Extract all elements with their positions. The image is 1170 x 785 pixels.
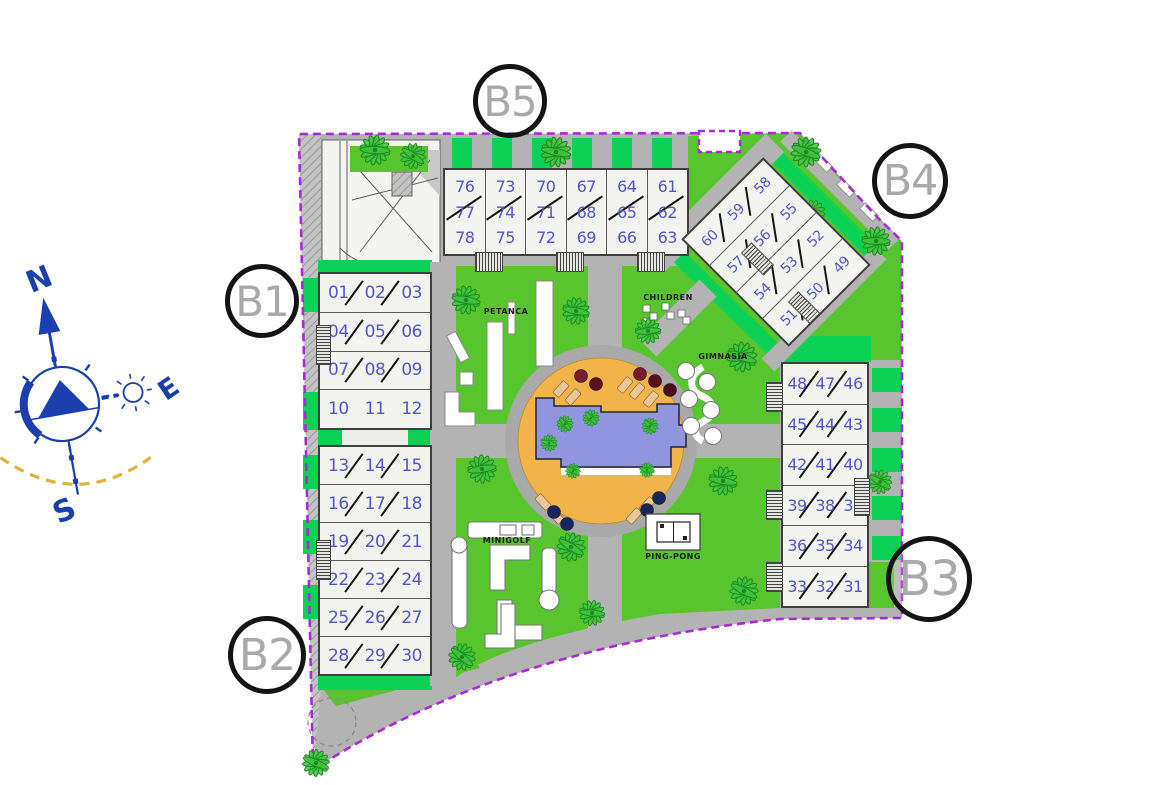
unit-number: 67 <box>577 177 596 196</box>
block-label-b2: B2 <box>228 616 306 694</box>
compass-rose: N E S <box>0 239 205 540</box>
unit-number: 14 <box>365 456 386 476</box>
compass-north-label: N <box>21 259 57 301</box>
block-label-b1: B1 <box>225 264 299 338</box>
unit-number: 55 <box>778 201 801 224</box>
terrain-layer: N E S <box>0 0 1170 785</box>
unit-number: 71 <box>536 203 555 222</box>
unit-number: 77 <box>455 203 474 222</box>
unit-row: 040506 <box>320 313 430 352</box>
stairs-icon <box>766 562 783 592</box>
unit-column: 707172 <box>526 170 567 254</box>
unit-number: 39 <box>787 496 806 515</box>
unit-column: 676869 <box>567 170 608 254</box>
minigolf-label: MINIGOLF <box>462 536 552 545</box>
children-label: CHILDREN <box>625 293 711 302</box>
unit-row: 363534 <box>783 526 867 567</box>
unit-number: 47 <box>815 374 834 393</box>
unit-number: 74 <box>496 203 515 222</box>
unit-number: 73 <box>496 177 515 196</box>
compass-south-label: S <box>48 491 82 532</box>
site-plan: N E S 7677787374757071726768696465666162… <box>0 0 1170 785</box>
unit-number: 59 <box>725 201 748 224</box>
unit-number: 23 <box>365 570 386 590</box>
unit-number: 49 <box>830 254 853 277</box>
unit-number: 61 <box>658 177 677 196</box>
block-label-text: B1 <box>235 277 289 326</box>
unit-column: 737475 <box>486 170 527 254</box>
unit-row: 010203 <box>320 274 430 313</box>
stairs-icon <box>475 252 503 272</box>
unit-number: 75 <box>496 228 515 247</box>
unit-number: 03 <box>401 283 422 303</box>
unit-number: 07 <box>328 360 349 380</box>
unit-number: 46 <box>843 374 862 393</box>
unit-number: 06 <box>401 322 422 342</box>
unit-number: 28 <box>328 646 349 666</box>
unit-number: 41 <box>815 455 834 474</box>
unit-number: 05 <box>365 322 386 342</box>
unit-number: 27 <box>401 608 422 628</box>
stairs-icon <box>854 478 870 516</box>
unit-number: 38 <box>815 496 834 515</box>
block-label-text: B4 <box>883 156 938 206</box>
unit-number: 54 <box>751 280 774 303</box>
unit-row: 101112 <box>320 390 430 428</box>
pingpong-label: PING-PONG <box>628 552 718 561</box>
compass-east-label: E <box>153 371 186 407</box>
unit-number: 63 <box>658 228 677 247</box>
unit-column: 767778 <box>445 170 486 254</box>
unit-number: 08 <box>365 360 386 380</box>
unit-number: 20 <box>365 532 386 552</box>
pool-area <box>505 345 697 537</box>
unit-number: 12 <box>401 399 422 419</box>
unit-number: 16 <box>328 494 349 514</box>
unit-row: 222324 <box>320 561 430 599</box>
unit-number: 40 <box>843 455 862 474</box>
unit-row: 484746 <box>783 364 867 405</box>
unit-number: 25 <box>328 608 349 628</box>
stairs-icon <box>556 252 584 272</box>
block-label-text: B3 <box>898 551 959 607</box>
block-label-text: B5 <box>483 77 537 126</box>
unit-row: 252627 <box>320 599 430 637</box>
unit-number: 24 <box>401 570 422 590</box>
unit-number: 66 <box>617 228 636 247</box>
unit-number: 78 <box>455 228 474 247</box>
unit-number: 44 <box>815 415 834 434</box>
unit-number: 17 <box>365 494 386 514</box>
block-label-b5: B5 <box>473 64 547 138</box>
stairs-icon <box>637 252 665 272</box>
unit-number: 69 <box>577 228 596 247</box>
unit-number: 52 <box>804 227 827 250</box>
unit-number: 34 <box>843 536 862 555</box>
unit-number: 72 <box>536 228 555 247</box>
unit-number: 33 <box>787 577 806 596</box>
unit-row: 131415 <box>320 447 430 485</box>
unit-number: 32 <box>815 577 834 596</box>
unit-row: 282930 <box>320 637 430 674</box>
unit-number: 76 <box>455 177 474 196</box>
block-label-text: B2 <box>239 630 295 681</box>
unit-number: 35 <box>815 536 834 555</box>
unit-number: 42 <box>787 455 806 474</box>
unit-number: 48 <box>787 374 806 393</box>
stairs-icon <box>766 490 783 520</box>
unit-number: 26 <box>365 608 386 628</box>
sun-icon <box>111 370 155 414</box>
unit-number: 02 <box>365 283 386 303</box>
unit-number: 15 <box>401 456 422 476</box>
unit-number: 45 <box>787 415 806 434</box>
block-label-b4: B4 <box>872 143 948 219</box>
stairs-icon <box>766 382 783 412</box>
building-b2: 131415161718192021222324252627282930 <box>318 445 432 676</box>
unit-number: 10 <box>328 399 349 419</box>
building-b5: 767778737475707172676869646566616263 <box>443 168 689 256</box>
unit-number: 70 <box>536 177 555 196</box>
unit-row: 070809 <box>320 352 430 391</box>
unit-number: 31 <box>843 577 862 596</box>
building-b1: 010203040506070809101112 <box>318 272 432 430</box>
unit-number: 13 <box>328 456 349 476</box>
unit-row: 333231 <box>783 567 867 607</box>
unit-number: 21 <box>401 532 422 552</box>
unit-number: 60 <box>698 227 721 250</box>
gimnasia-label: GIMNASIA <box>680 352 766 361</box>
unit-number: 65 <box>617 203 636 222</box>
b1-b2-gap-path <box>342 430 408 445</box>
unit-row: 161718 <box>320 485 430 523</box>
unit-number: 30 <box>401 646 422 666</box>
unit-number: 29 <box>365 646 386 666</box>
unit-column: 616263 <box>648 170 688 254</box>
block-label-b3: B3 <box>886 536 972 622</box>
unit-number: 58 <box>751 174 774 197</box>
stairs-icon <box>316 540 331 580</box>
stairs-icon <box>316 325 331 365</box>
unit-number: 04 <box>328 322 349 342</box>
unit-number: 43 <box>843 415 862 434</box>
unit-number: 68 <box>577 203 596 222</box>
unit-row: 192021 <box>320 523 430 561</box>
unit-number: 11 <box>365 399 386 419</box>
unit-row: 454443 <box>783 405 867 446</box>
unit-number: 53 <box>778 254 801 277</box>
petanca-label: PETANCA <box>460 307 552 316</box>
unit-number: 09 <box>401 360 422 380</box>
unit-number: 18 <box>401 494 422 514</box>
boundary-notch <box>699 131 740 152</box>
unit-column: 646566 <box>607 170 648 254</box>
unit-number: 36 <box>787 536 806 555</box>
unit-number: 22 <box>328 570 349 590</box>
unit-number: 64 <box>617 177 636 196</box>
ping-pong-table <box>646 514 700 550</box>
unit-number: 62 <box>658 203 677 222</box>
unit-number: 19 <box>328 532 349 552</box>
unit-number: 01 <box>328 283 349 303</box>
